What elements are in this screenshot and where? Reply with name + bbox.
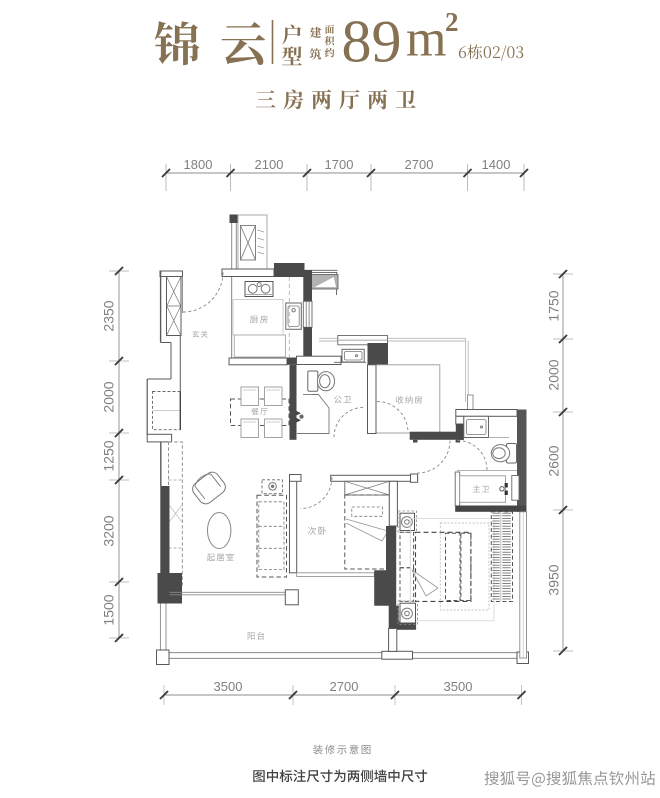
svg-text:3200: 3200 [101, 515, 117, 546]
svg-text:2700: 2700 [330, 679, 359, 694]
svg-text:1500: 1500 [101, 594, 117, 625]
svg-text:1400: 1400 [482, 157, 511, 172]
svg-text:1250: 1250 [101, 440, 117, 471]
svg-text:2350: 2350 [101, 300, 117, 331]
svg-text:2700: 2700 [405, 157, 434, 172]
svg-text:2: 2 [445, 7, 459, 37]
svg-text:1700: 1700 [325, 157, 354, 172]
svg-text:m: m [406, 11, 446, 68]
svg-text:89: 89 [342, 9, 402, 75]
svg-text:2000: 2000 [546, 359, 562, 390]
svg-text:3500: 3500 [444, 679, 473, 694]
svg-text:2100: 2100 [255, 157, 284, 172]
svg-text:3500: 3500 [214, 679, 243, 694]
svg-text:2000: 2000 [101, 381, 117, 412]
svg-text:1750: 1750 [546, 290, 562, 321]
svg-text:2600: 2600 [546, 445, 562, 476]
svg-text:1800: 1800 [184, 157, 213, 172]
svg-text:3950: 3950 [546, 564, 562, 595]
